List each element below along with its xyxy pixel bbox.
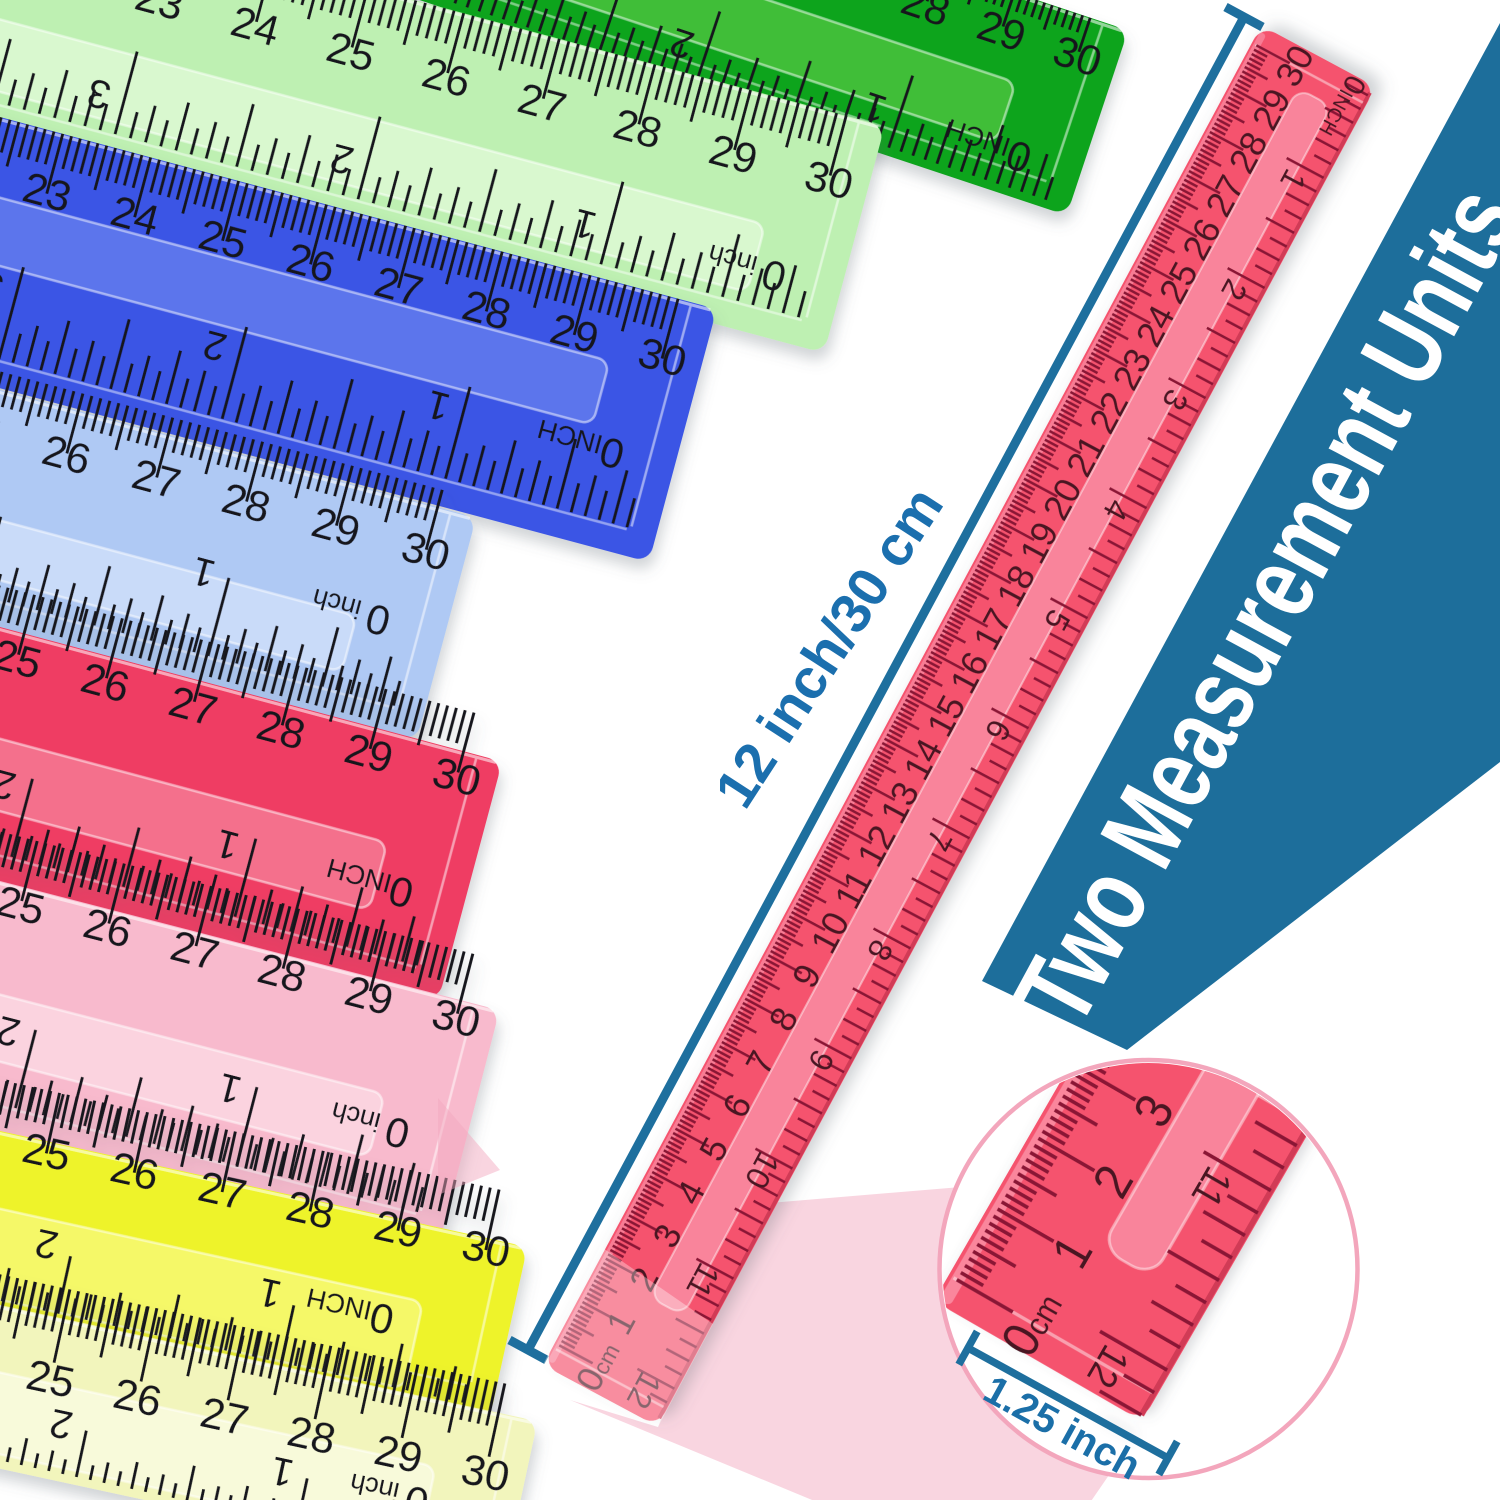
svg-text:27: 27 (196, 1388, 253, 1445)
svg-text:25: 25 (22, 1351, 79, 1408)
svg-text:29: 29 (370, 1201, 427, 1258)
svg-text:26: 26 (109, 1370, 166, 1427)
svg-text:25: 25 (18, 1124, 75, 1181)
svg-text:27: 27 (194, 1163, 251, 1220)
svg-text:28: 28 (282, 1182, 339, 1239)
svg-text:26: 26 (106, 1143, 163, 1200)
svg-text:30: 30 (457, 1445, 514, 1500)
svg-text:30: 30 (457, 1221, 514, 1278)
